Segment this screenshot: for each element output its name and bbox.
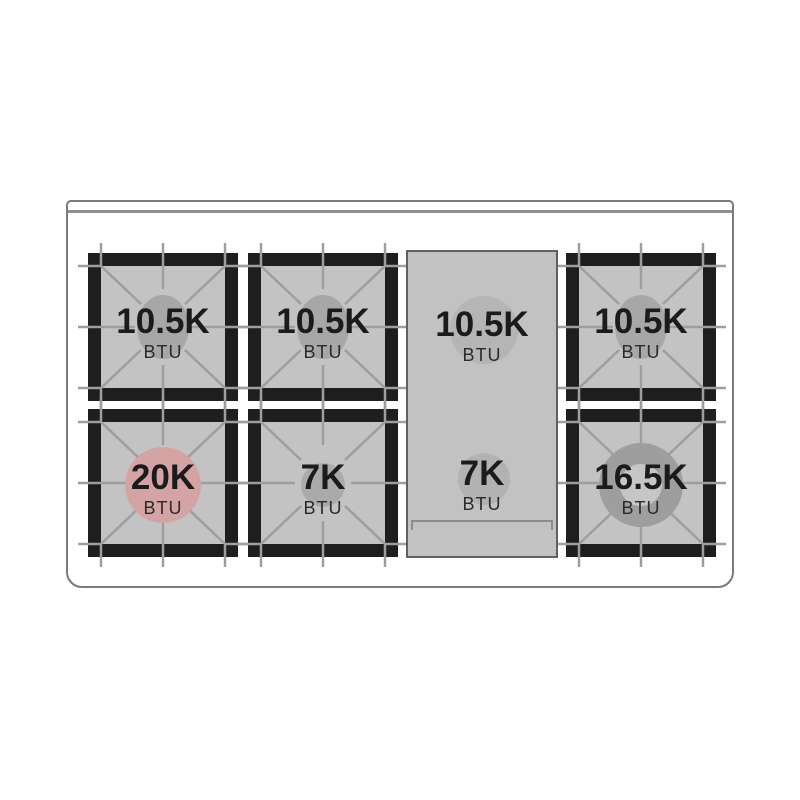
burner-unit: BTU: [88, 341, 238, 363]
burner-value: 10.5K: [248, 303, 398, 341]
burner-grate-front-right: 16.5K BTU: [566, 409, 716, 557]
burner-label: 10.5K BTU: [88, 303, 238, 363]
burner-label: 10.5K BTU: [408, 306, 556, 366]
burner-grate-rear-right: 10.5K BTU: [566, 253, 716, 401]
burner-unit: BTU: [248, 497, 398, 519]
burner-unit: BTU: [566, 497, 716, 519]
burner-value: 16.5K: [566, 459, 716, 497]
burner-value: 10.5K: [88, 303, 238, 341]
cooktop-diagram: 10.5K BTU 10.5K BTU 10.5K BTU: [0, 0, 800, 800]
burner-value: 10.5K: [408, 306, 556, 344]
burner-label: 10.5K BTU: [566, 303, 716, 363]
burner-label: 7K BTU: [408, 455, 556, 515]
griddle-front-edge-line: [411, 520, 553, 522]
burner-grate-rear-center-left: 10.5K BTU: [248, 253, 398, 401]
burner-unit: BTU: [566, 341, 716, 363]
cooktop-rear-trim: [68, 202, 732, 213]
burner-unit: BTU: [408, 344, 556, 366]
burner-value: 20K: [88, 459, 238, 497]
burner-label: 10.5K BTU: [248, 303, 398, 363]
burner-grate-rear-left: 10.5K BTU: [88, 253, 238, 401]
burner-unit: BTU: [408, 493, 556, 515]
burner-label: 16.5K BTU: [566, 459, 716, 519]
burner-unit: BTU: [248, 341, 398, 363]
cooktop-outline: 10.5K BTU 10.5K BTU 10.5K BTU: [66, 200, 734, 588]
burner-label: 7K BTU: [248, 459, 398, 519]
burner-grate-front-center-left: 7K BTU: [248, 409, 398, 557]
burner-label: 20K BTU: [88, 459, 238, 519]
burner-value: 7K: [248, 459, 398, 497]
burner-value: 7K: [408, 455, 556, 493]
burner-unit: BTU: [88, 497, 238, 519]
griddle-plate: 10.5K BTU 7K BTU: [406, 250, 558, 558]
burner-value: 10.5K: [566, 303, 716, 341]
burner-grate-front-left: 20K BTU: [88, 409, 238, 557]
